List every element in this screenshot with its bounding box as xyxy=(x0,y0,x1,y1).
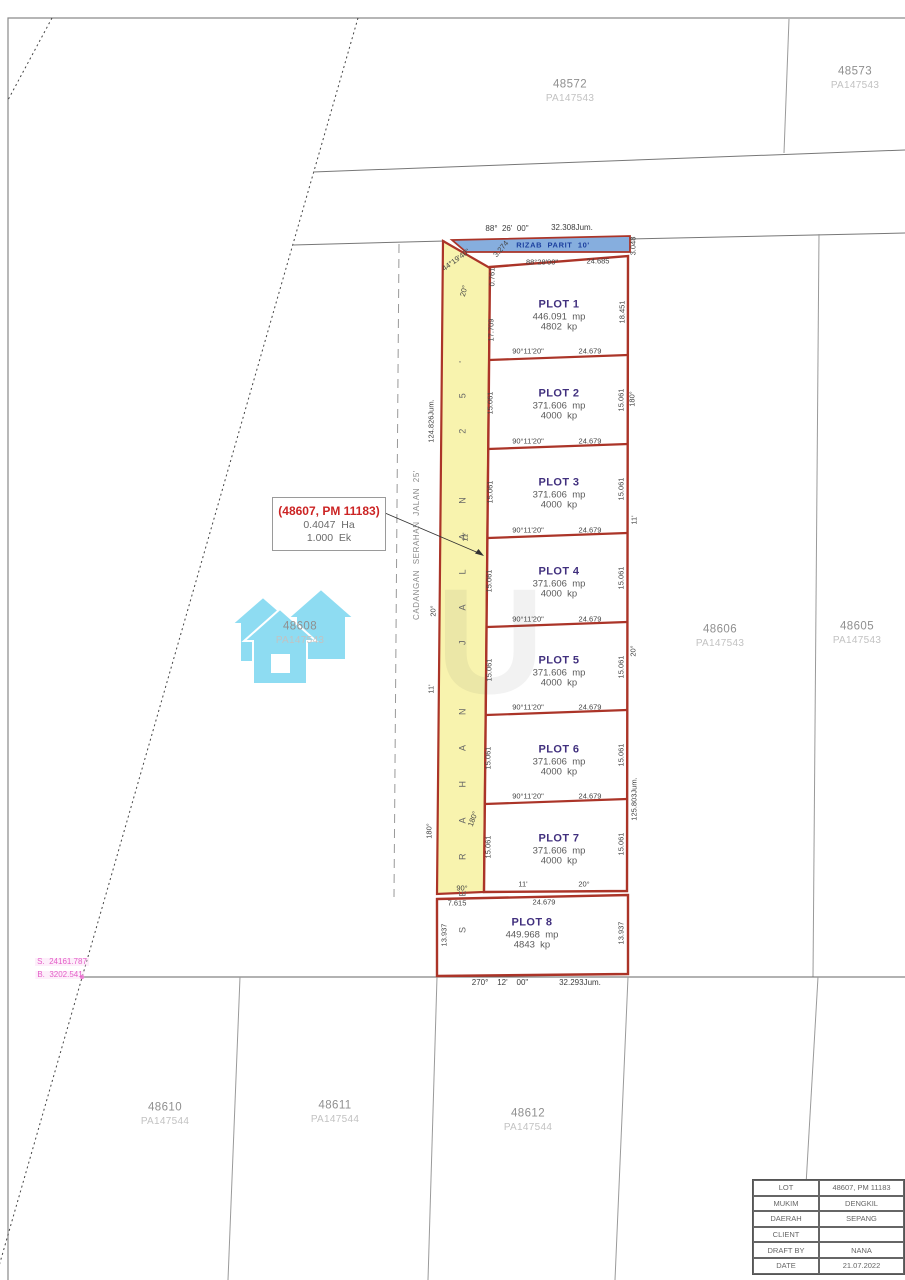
lot-48612-number: 48612 xyxy=(511,1108,545,1120)
road-angle-90: 90° xyxy=(456,884,467,892)
plot-6-name: PLOT 6 xyxy=(539,745,580,756)
plot-2-name: PLOT 2 xyxy=(539,389,580,400)
plot-7-name: PLOT 7 xyxy=(539,834,580,845)
plot-3-left-dim: 15.061 xyxy=(486,481,494,504)
plot-6-left-dim: 15.061 xyxy=(484,747,492,770)
road-angle-180: 180° xyxy=(425,823,433,839)
dim-0761: 0.761 xyxy=(488,268,496,287)
plot-4-bottom-bearing: 90°11'20" xyxy=(512,615,544,623)
lot-48611-pa: PA147544 xyxy=(311,1115,359,1125)
lot-48610-pa: PA147544 xyxy=(141,1117,189,1127)
plot-4-area-kp: 4000 kp xyxy=(541,589,577,599)
rizab-parit-label: RIZAB PARIT 10' xyxy=(516,241,590,249)
title-block-value: 48607, PM 11183 xyxy=(819,1180,904,1196)
plot-2-area-kp: 4000 kp xyxy=(541,411,577,421)
plot-2-left-dim: 15.061 xyxy=(486,392,494,415)
plot-7-bottom-11: 11' xyxy=(518,880,527,888)
plot-8-area-kp: 4843 kp xyxy=(514,940,550,950)
plot-4-right-dim: 15.061 xyxy=(617,567,625,590)
plot-1-left-dim: 17.709 xyxy=(487,319,495,342)
plot-2-bottom-dist: 24.679 xyxy=(579,437,602,445)
boundary-top xyxy=(313,150,905,172)
lot-48610-number: 48610 xyxy=(148,1102,182,1114)
title-block-label: LOT xyxy=(753,1180,819,1196)
right-angle-11: 11' xyxy=(630,515,638,524)
bottom-bearing: 270° 12' 00" xyxy=(472,979,529,987)
cadangan-dashed-line xyxy=(394,244,399,897)
plot-5-right-dim: 15.061 xyxy=(617,656,625,679)
cadangan-road-label: CADANGAN SERAHAN JALAN 25' xyxy=(413,470,421,620)
lot-48573-number: 48573 xyxy=(838,66,872,78)
title-block-value: SEPANG xyxy=(819,1211,904,1227)
bottom-bearing-total: 32.293Jum. xyxy=(559,979,601,987)
lot-48605-pa: PA147543 xyxy=(833,636,881,646)
plot-8-top-left-dim: 7.615 xyxy=(448,899,467,907)
lot-48608-number: 48608 xyxy=(283,621,317,633)
plot-8-name: PLOT 8 xyxy=(512,918,553,929)
lot-48606-pa: PA147543 xyxy=(696,639,744,649)
divider-48572-48573 xyxy=(784,19,789,153)
plot-7-right-dim: 15.061 xyxy=(617,833,625,856)
survey-coord-b: B. 3202.541 xyxy=(35,971,84,979)
plot-2-bottom-bearing: 90°11'20" xyxy=(512,437,544,445)
lot-48611-number: 48611 xyxy=(318,1100,351,1112)
plot-8-top-dist: 24.679 xyxy=(533,898,556,906)
title-block-label: DATE xyxy=(753,1258,819,1274)
plot-4-left-dim: 15.061 xyxy=(485,570,493,593)
plot-7-left-dim: 15.061 xyxy=(484,836,492,859)
plot-3-bottom-bearing: 90°11'20" xyxy=(512,526,544,534)
boundary-upper-left xyxy=(293,241,445,245)
dim-3048: 3.048 xyxy=(629,237,637,256)
title-block-value: NANA xyxy=(819,1242,904,1258)
plot-1-area-kp: 4802 kp xyxy=(541,322,577,332)
road-angle-20: 20° xyxy=(429,605,437,616)
plot-4-name: PLOT 4 xyxy=(539,567,580,578)
plot-3-area-kp: 4000 kp xyxy=(541,500,577,510)
lot-48612-pa: PA147544 xyxy=(504,1123,552,1133)
title-block-value: DENGKIL xyxy=(819,1196,904,1212)
lot-48572-number: 48572 xyxy=(553,79,587,91)
lot-annotation-box: (48607, PM 11183) 0.4047 Ha 1.000 Ek xyxy=(272,497,386,551)
title-block: LOT 48607, PM 11183 MUKIM DENGKIL DAERAH… xyxy=(752,1179,905,1275)
road-angle-11-mid: 11' xyxy=(461,532,469,541)
plot-6-area-kp: 4000 kp xyxy=(541,767,577,777)
title-block-label: CLIENT xyxy=(753,1227,819,1243)
title-block-label: DAERAH xyxy=(753,1211,819,1227)
divider-bottom-right xyxy=(806,977,818,1185)
title-block-label: MUKIM xyxy=(753,1196,819,1212)
plot-5-bottom-dist: 24.679 xyxy=(579,703,602,711)
lot-48605-number: 48605 xyxy=(840,621,874,633)
lot-48608-pa: PA147543 xyxy=(276,636,324,646)
divider-48610-48611 xyxy=(228,977,240,1280)
divider-48606-48605 xyxy=(813,234,819,977)
plot-1-bottom-bearing: 90°11'20" xyxy=(512,347,544,355)
plot-1-top-bearing: 88°28'00" xyxy=(526,258,558,266)
survey-coord-s: S. 24161.787 xyxy=(35,958,89,966)
plot-3-name: PLOT 3 xyxy=(539,478,580,489)
plot-6-bottom-dist: 24.679 xyxy=(579,792,602,800)
plot-3-bottom-dist: 24.679 xyxy=(579,526,602,534)
plot-1-bottom-dist: 24.679 xyxy=(579,347,602,355)
plot-3-right-dim: 15.061 xyxy=(617,478,625,501)
plot-8-left-dim: 13.937 xyxy=(440,924,448,947)
plot-7-area-kp: 4000 kp xyxy=(541,856,577,866)
plot-5-left-dim: 15.061 xyxy=(485,659,493,682)
plot-5-name: PLOT 5 xyxy=(539,656,580,667)
title-block-value: 21.07.2022 xyxy=(819,1258,904,1274)
annotation-area-ek: 1.000 Ek xyxy=(307,532,351,544)
plot-5-area-kp: 4000 kp xyxy=(541,678,577,688)
plot-6-right-dim: 15.061 xyxy=(617,744,625,767)
top-bearing: 88° 26' 00" xyxy=(485,225,528,233)
survey-plan-sheet: U 48572 PA147543 48573 PA147543 48608 PA… xyxy=(0,0,905,1280)
right-angle-20: 20° xyxy=(629,645,637,656)
annotation-area-ha: 0.4047 Ha xyxy=(303,519,354,531)
lot-48606-number: 48606 xyxy=(703,624,737,636)
plot-5-bottom-bearing: 90°11'20" xyxy=(512,703,544,711)
boundary-diagonal-short xyxy=(8,18,52,100)
boundary-upper-right xyxy=(628,233,905,239)
divider-48612-right xyxy=(615,977,628,1280)
plot-8-right-dim: 13.937 xyxy=(617,922,625,945)
divider-48611-48612 xyxy=(428,977,437,1280)
plot-1-name: PLOT 1 xyxy=(539,300,580,311)
title-block-value xyxy=(819,1227,904,1243)
plot-6-bottom-bearing: 90°11'20" xyxy=(512,792,544,800)
title-block-label: DRAFT BY xyxy=(753,1242,819,1258)
right-angle-180: 180° xyxy=(628,391,636,407)
lot-48573-pa: PA147543 xyxy=(831,81,879,91)
lot-48572-pa: PA147543 xyxy=(546,94,594,104)
plot-7-bottom-20: 20° xyxy=(578,880,589,888)
plot-2-right-dim: 15.061 xyxy=(617,389,625,412)
road-name-label: S E R A H A N J A L A N 2 5 ' xyxy=(459,347,468,933)
right-total-length: 125.803Jum. xyxy=(630,777,638,820)
plot-4-bottom-dist: 24.679 xyxy=(579,615,602,623)
annotation-lot-id: (48607, PM 11183) xyxy=(278,504,379,518)
road-angle-11: 11' xyxy=(427,684,435,693)
road-length-label: 124.826Jum. xyxy=(427,399,435,442)
plot-1-right-dim: 18.451 xyxy=(618,301,626,324)
plot-1-top-dist: 24.685 xyxy=(587,257,610,265)
top-bearing-total: 32.308Jum. xyxy=(551,224,593,232)
